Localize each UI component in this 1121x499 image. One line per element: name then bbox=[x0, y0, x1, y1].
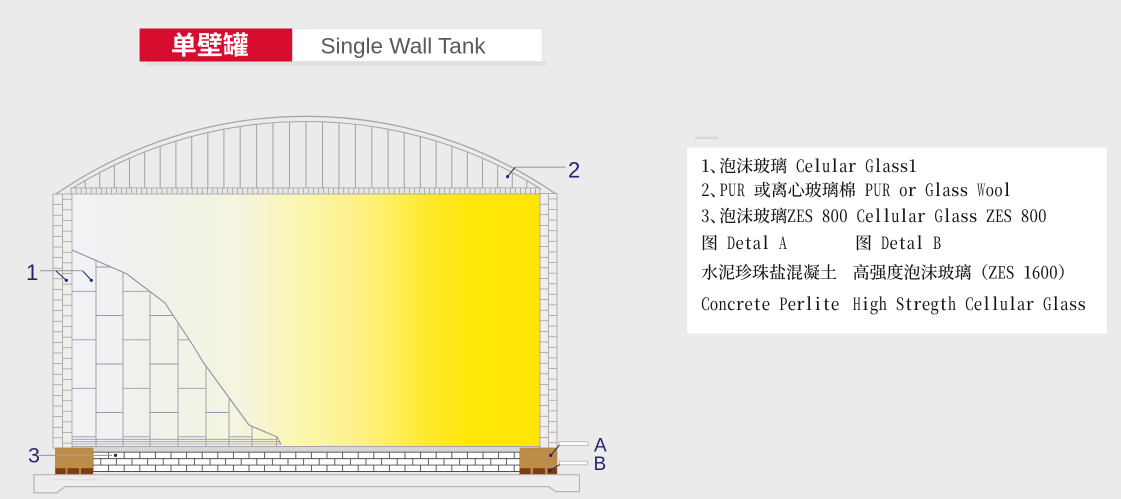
svg-text:1: 1 bbox=[26, 260, 38, 285]
svg-text:B: B bbox=[594, 454, 607, 475]
svg-text:3: 3 bbox=[28, 444, 40, 468]
svg-text:2: 2 bbox=[568, 158, 580, 183]
svg-text:Single Wall Tank: Single Wall Tank bbox=[321, 34, 487, 59]
